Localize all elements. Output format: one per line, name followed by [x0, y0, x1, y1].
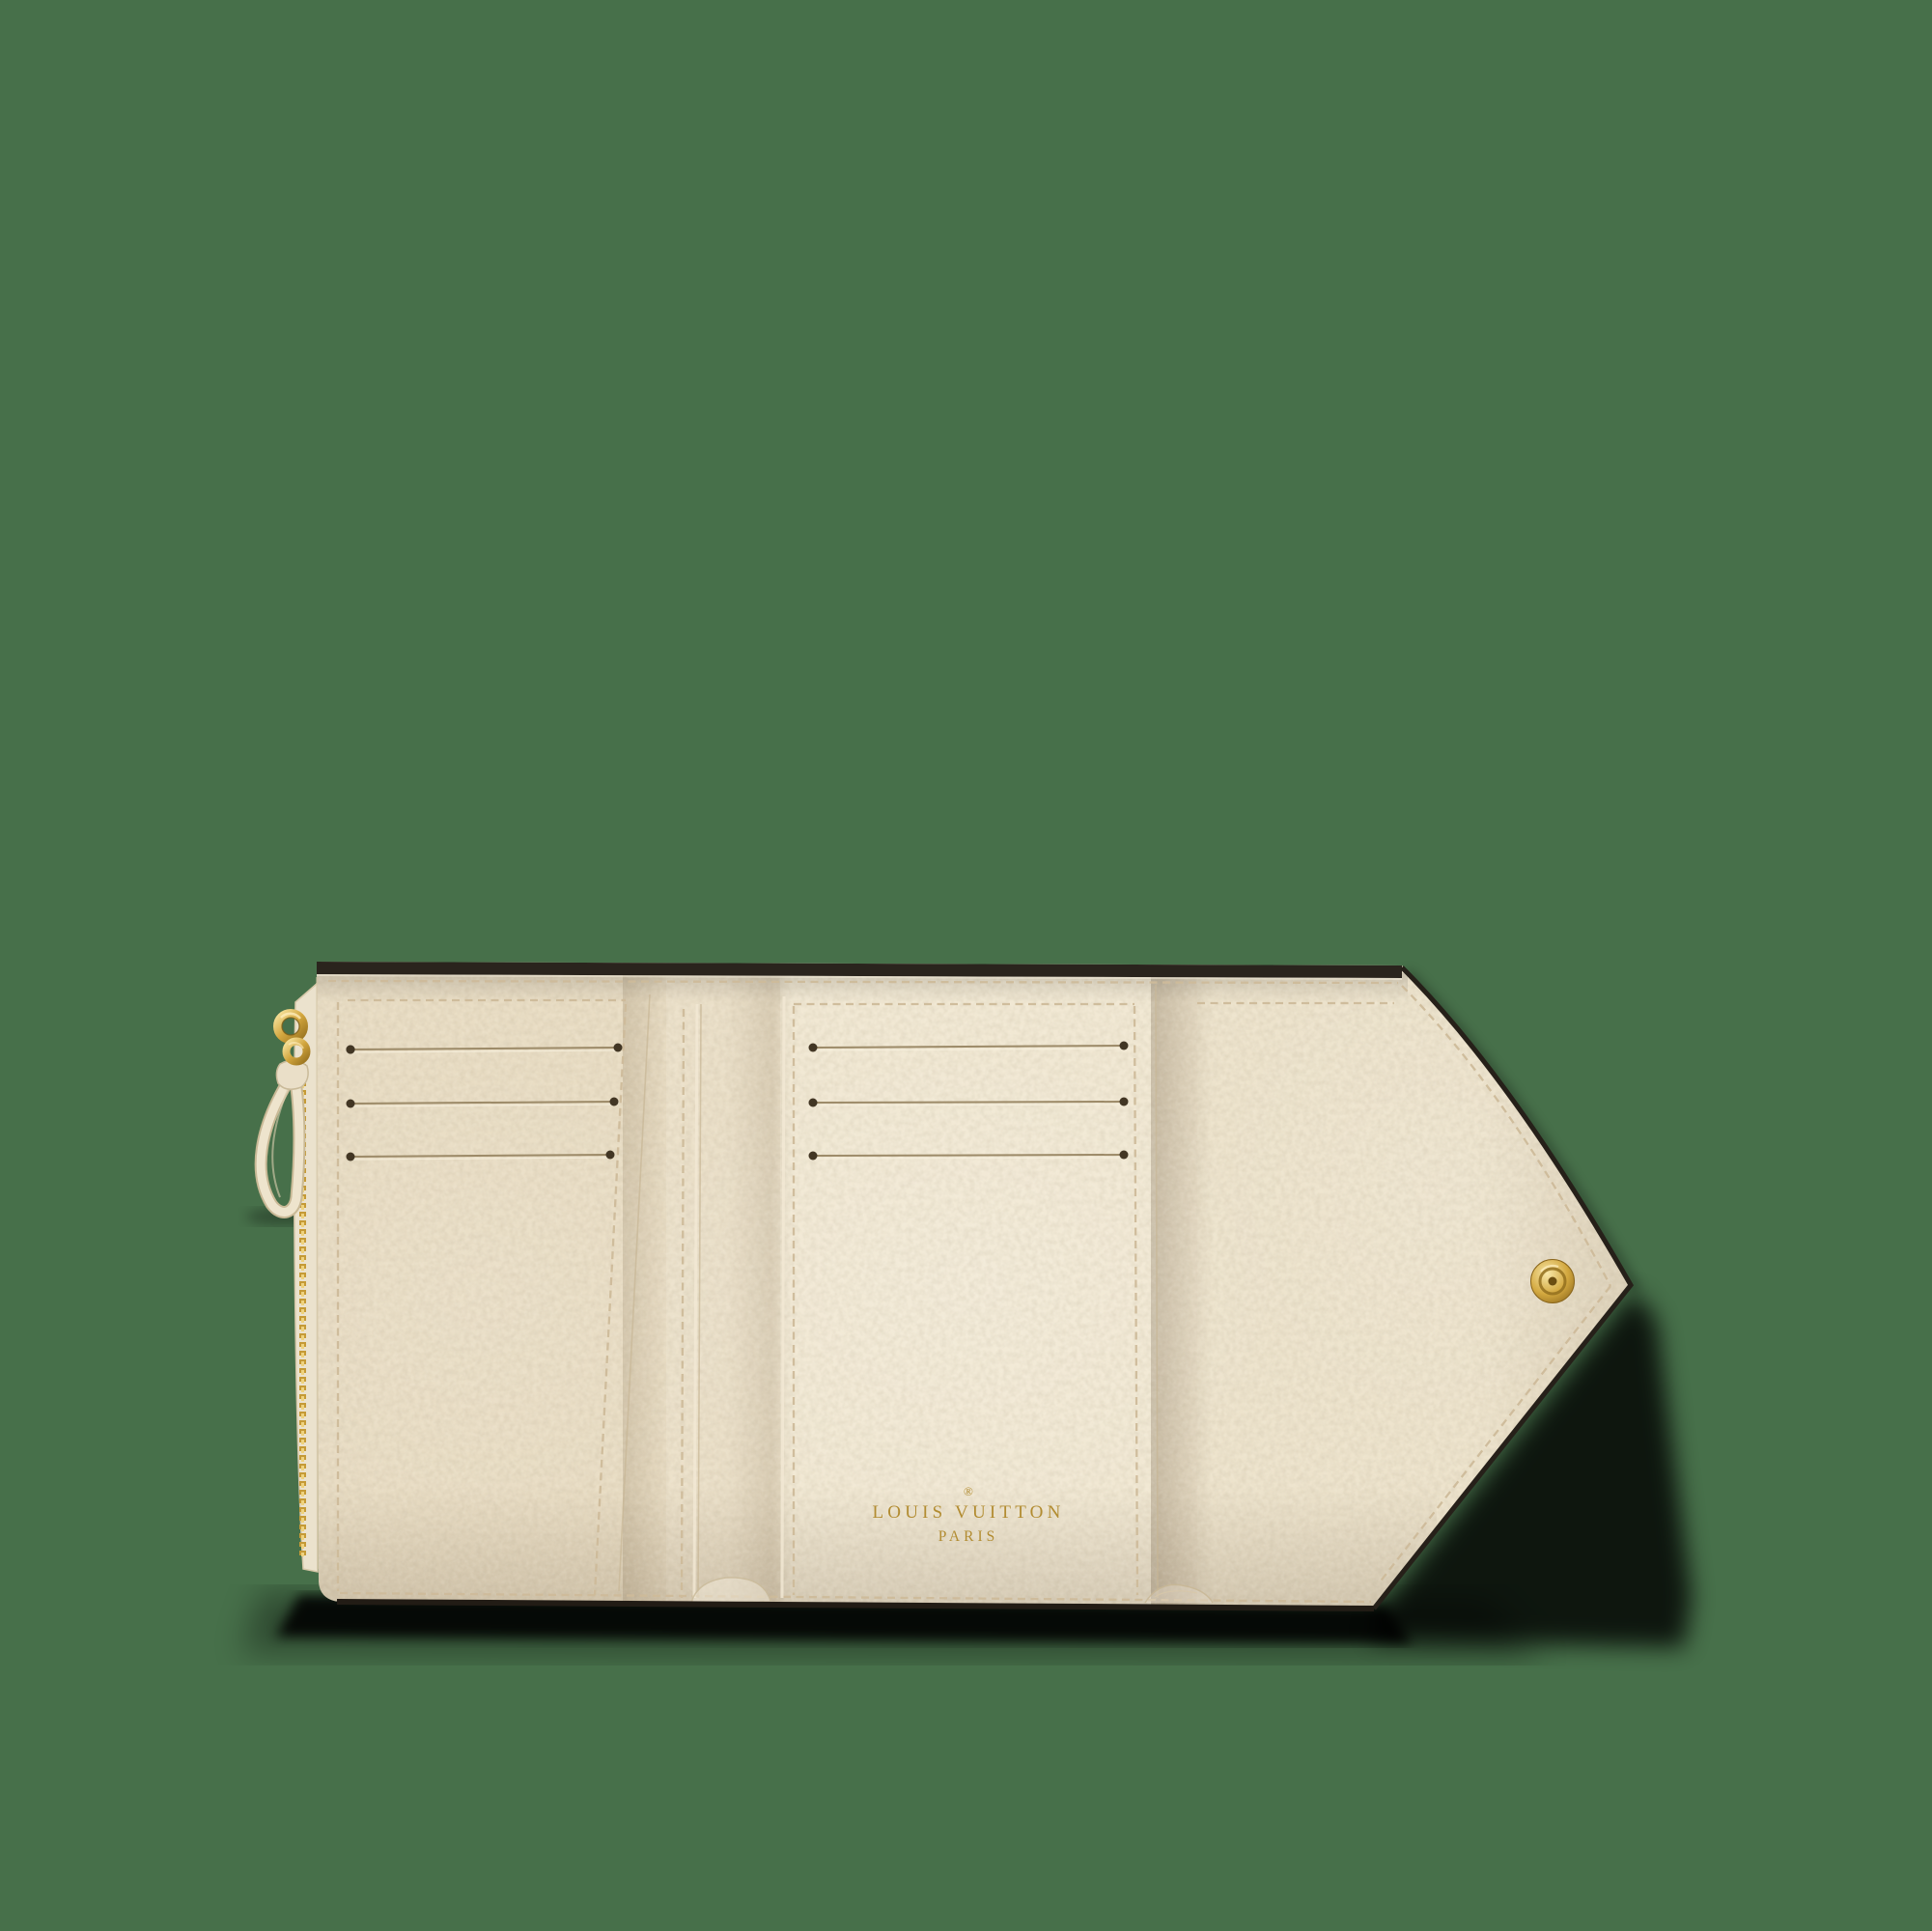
left-edge-line	[317, 977, 318, 1569]
crease-center-ridge	[782, 996, 784, 1598]
zipper	[261, 983, 318, 1572]
snap-button	[1531, 1260, 1575, 1303]
brand-city-text: PARIS	[938, 1528, 999, 1545]
wallet-illustration: ® LOUIS VUITTON PARIS	[0, 0, 1932, 1931]
zipper-pull-icon	[278, 1014, 307, 1062]
registered-mark: ®	[964, 1484, 973, 1498]
brand-name-text: LOUIS VUITTON	[872, 1502, 1064, 1523]
cord-knot	[276, 1060, 308, 1089]
product-photo: ® LOUIS VUITTON PARIS	[0, 0, 1932, 1931]
